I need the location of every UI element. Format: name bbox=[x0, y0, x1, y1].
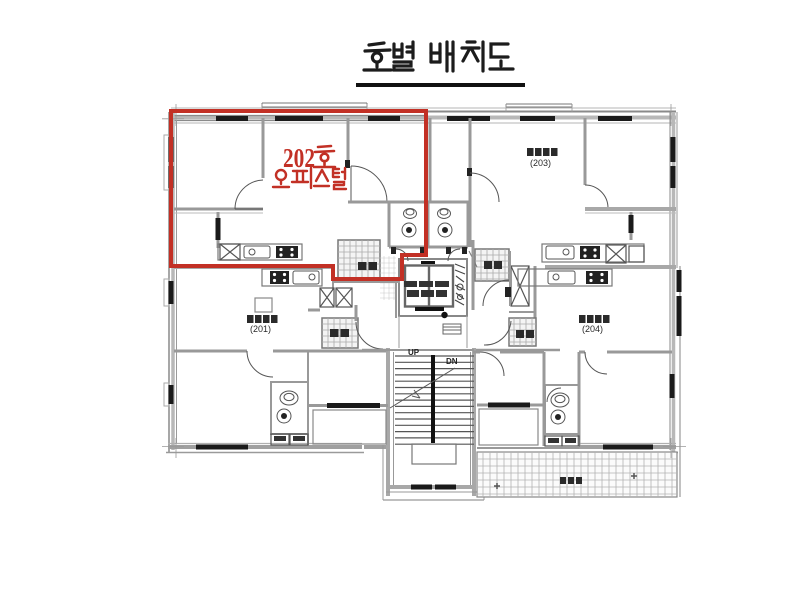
svg-text:(203): (203) bbox=[530, 158, 551, 168]
svg-text:(201): (201) bbox=[250, 324, 271, 334]
svg-text:UP: UP bbox=[408, 348, 420, 357]
svg-text:DN: DN bbox=[446, 357, 458, 366]
svg-text:(204): (204) bbox=[582, 324, 603, 334]
